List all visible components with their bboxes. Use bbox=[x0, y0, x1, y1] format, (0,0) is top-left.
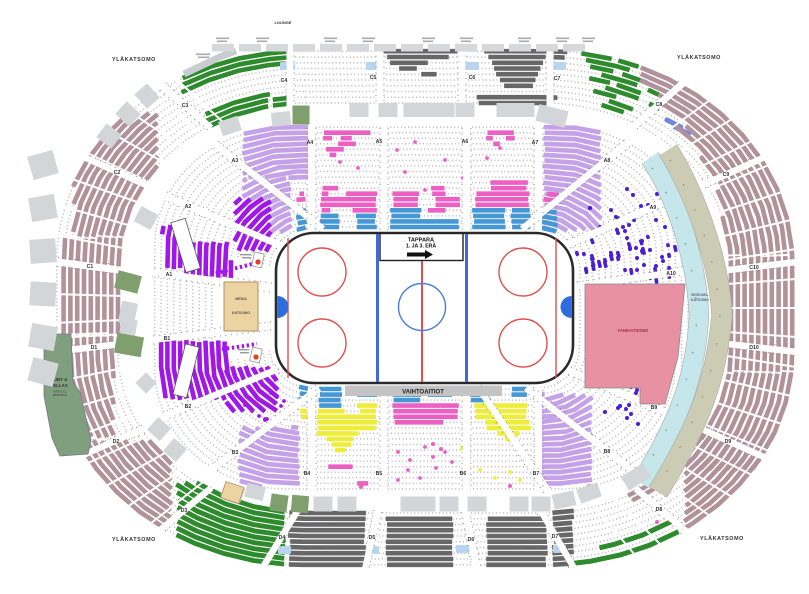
svg-text:C1: C1 bbox=[87, 264, 94, 270]
svg-text:KATSOMO: KATSOMO bbox=[232, 311, 250, 315]
svg-text:A4: A4 bbox=[307, 140, 314, 146]
svg-text:D4: D4 bbox=[279, 535, 286, 541]
svg-text:A5: A5 bbox=[376, 139, 383, 145]
svg-text:B7: B7 bbox=[533, 471, 540, 477]
svg-text:A8: A8 bbox=[604, 158, 611, 164]
svg-text:B4: B4 bbox=[304, 471, 311, 477]
svg-text:C4: C4 bbox=[281, 78, 288, 84]
svg-text:AITIO & CL.: AITIO & CL. bbox=[53, 390, 67, 394]
svg-text:D1: D1 bbox=[91, 345, 98, 351]
svg-text:1. JA 3. ERÄ: 1. JA 3. ERÄ bbox=[406, 243, 437, 250]
svg-text:D2: D2 bbox=[113, 439, 120, 445]
svg-text:B9: B9 bbox=[651, 405, 658, 411]
svg-text:C2: C2 bbox=[114, 170, 121, 176]
svg-text:YLÄKATSOMO: YLÄKATSOMO bbox=[112, 56, 156, 63]
svg-text:KATSOMO: KATSOMO bbox=[691, 298, 709, 302]
svg-text:C7: C7 bbox=[554, 76, 561, 82]
svg-text:B1: B1 bbox=[164, 336, 171, 342]
svg-text:YLÄKATSOMO: YLÄKATSOMO bbox=[700, 535, 744, 542]
svg-text:B3: B3 bbox=[232, 450, 239, 456]
svg-text:B5: B5 bbox=[376, 471, 383, 477]
svg-text:C10: C10 bbox=[749, 265, 759, 271]
svg-text:C3: C3 bbox=[182, 103, 189, 109]
svg-text:B8: B8 bbox=[604, 449, 611, 455]
svg-text:B2: B2 bbox=[185, 404, 192, 410]
svg-text:VAIHTOAITIOT: VAIHTOAITIOT bbox=[402, 390, 444, 396]
svg-text:C6: C6 bbox=[469, 75, 476, 81]
svg-text:A10: A10 bbox=[666, 271, 676, 277]
svg-text:D6: D6 bbox=[468, 537, 475, 543]
svg-text:D5: D5 bbox=[369, 535, 376, 541]
svg-text:MEDIA: MEDIA bbox=[235, 297, 247, 301]
svg-text:D10: D10 bbox=[749, 345, 759, 351]
svg-text:A7: A7 bbox=[532, 140, 539, 146]
svg-text:D8: D8 bbox=[656, 507, 663, 513]
svg-text:B6: B6 bbox=[460, 471, 467, 477]
svg-text:A9: A9 bbox=[650, 205, 657, 211]
svg-text:RAVINTOLA: RAVINTOLA bbox=[53, 393, 68, 397]
svg-text:SEISOMA-: SEISOMA- bbox=[691, 293, 710, 297]
svg-text:A3: A3 bbox=[232, 158, 239, 164]
svg-text:A2: A2 bbox=[185, 204, 192, 210]
svg-text:A1: A1 bbox=[166, 272, 173, 278]
svg-text:YLÄKATSOMO: YLÄKATSOMO bbox=[677, 54, 721, 61]
svg-text:C5: C5 bbox=[370, 75, 377, 81]
svg-text:YLÄKATSOMO: YLÄKATSOMO bbox=[112, 536, 156, 543]
svg-text:D9: D9 bbox=[725, 439, 732, 445]
svg-text:LOUNGE: LOUNGE bbox=[274, 20, 291, 25]
svg-text:FANIKATSOMO: FANIKATSOMO bbox=[618, 328, 649, 333]
svg-text:C9: C9 bbox=[723, 172, 730, 178]
svg-text:D7: D7 bbox=[552, 534, 559, 540]
svg-text:C8: C8 bbox=[656, 102, 663, 108]
svg-text:A6: A6 bbox=[462, 139, 469, 145]
svg-text:D3: D3 bbox=[181, 508, 188, 514]
